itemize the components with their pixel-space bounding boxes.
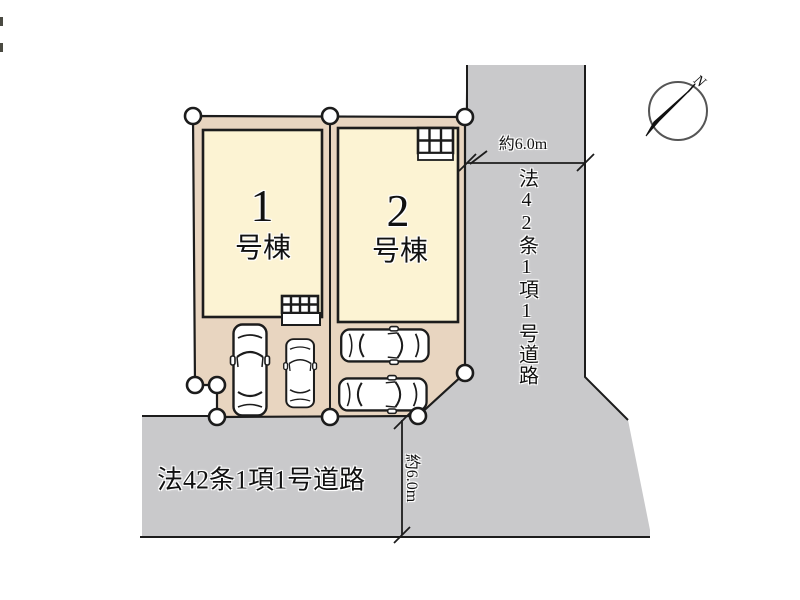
survey-point (322, 409, 338, 425)
building-2-balcony-grid (418, 128, 453, 153)
right-road-name-label: 法42条1項1号道路 (513, 168, 542, 386)
building-2-porch (418, 153, 453, 160)
building-1-balcony-grid (282, 296, 318, 313)
car-1 (231, 325, 270, 416)
building-1-number-label: 1 (251, 183, 274, 229)
right-road-width-label: 約6.0m (499, 130, 547, 154)
survey-point (457, 109, 473, 125)
car-4 (339, 376, 426, 414)
survey-point (209, 409, 225, 425)
survey-point (185, 108, 201, 124)
site-plan-drawing (0, 0, 800, 600)
survey-point (410, 408, 426, 424)
scan-artifact (0, 17, 3, 26)
site-plan: 1 号棟 2 号棟 約6.0m 法42条1項1号道路 法42条1項1号道路 約6… (0, 0, 800, 600)
survey-point (187, 377, 203, 393)
building-2-number-label: 2 (387, 188, 410, 234)
building-1-suffix-label: 号棟 (235, 235, 291, 263)
survey-point (209, 377, 225, 393)
survey-point (322, 108, 338, 124)
survey-point (457, 365, 473, 381)
car-3 (341, 327, 428, 365)
bottom-road-name-label: 法42条1項1号道路 (157, 460, 365, 497)
scan-artifact (0, 43, 3, 52)
car-2 (284, 339, 317, 407)
building-2-suffix-label: 号棟 (372, 238, 428, 266)
bottom-road-width-label: 約6.0m (402, 454, 426, 502)
building-1-porch (282, 313, 320, 325)
